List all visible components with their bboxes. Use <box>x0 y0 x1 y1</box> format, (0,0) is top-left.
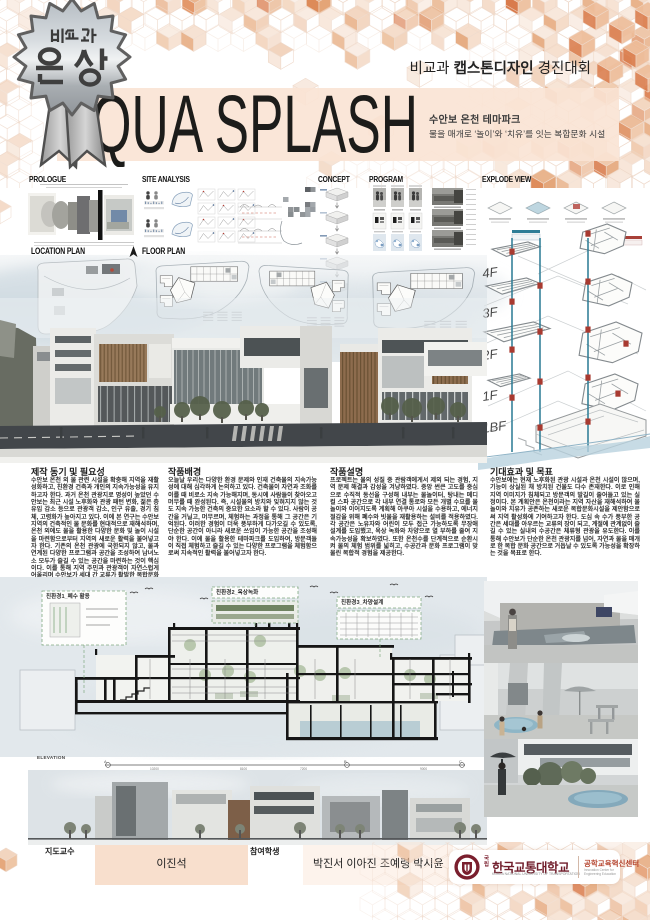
svg-text:B: B <box>344 759 347 764</box>
svg-text:친환경1_폐수 활용: 친환경1_폐수 활용 <box>46 592 90 600</box>
svg-text:C: C <box>459 759 462 764</box>
svg-text:4F: 4F <box>481 264 499 281</box>
svg-text:친환경2_옥상녹화: 친환경2_옥상녹화 <box>216 588 259 596</box>
svg-text:친환경3_차양설계: 친환경3_차양설계 <box>341 598 383 606</box>
svg-text:A: A <box>104 759 107 764</box>
